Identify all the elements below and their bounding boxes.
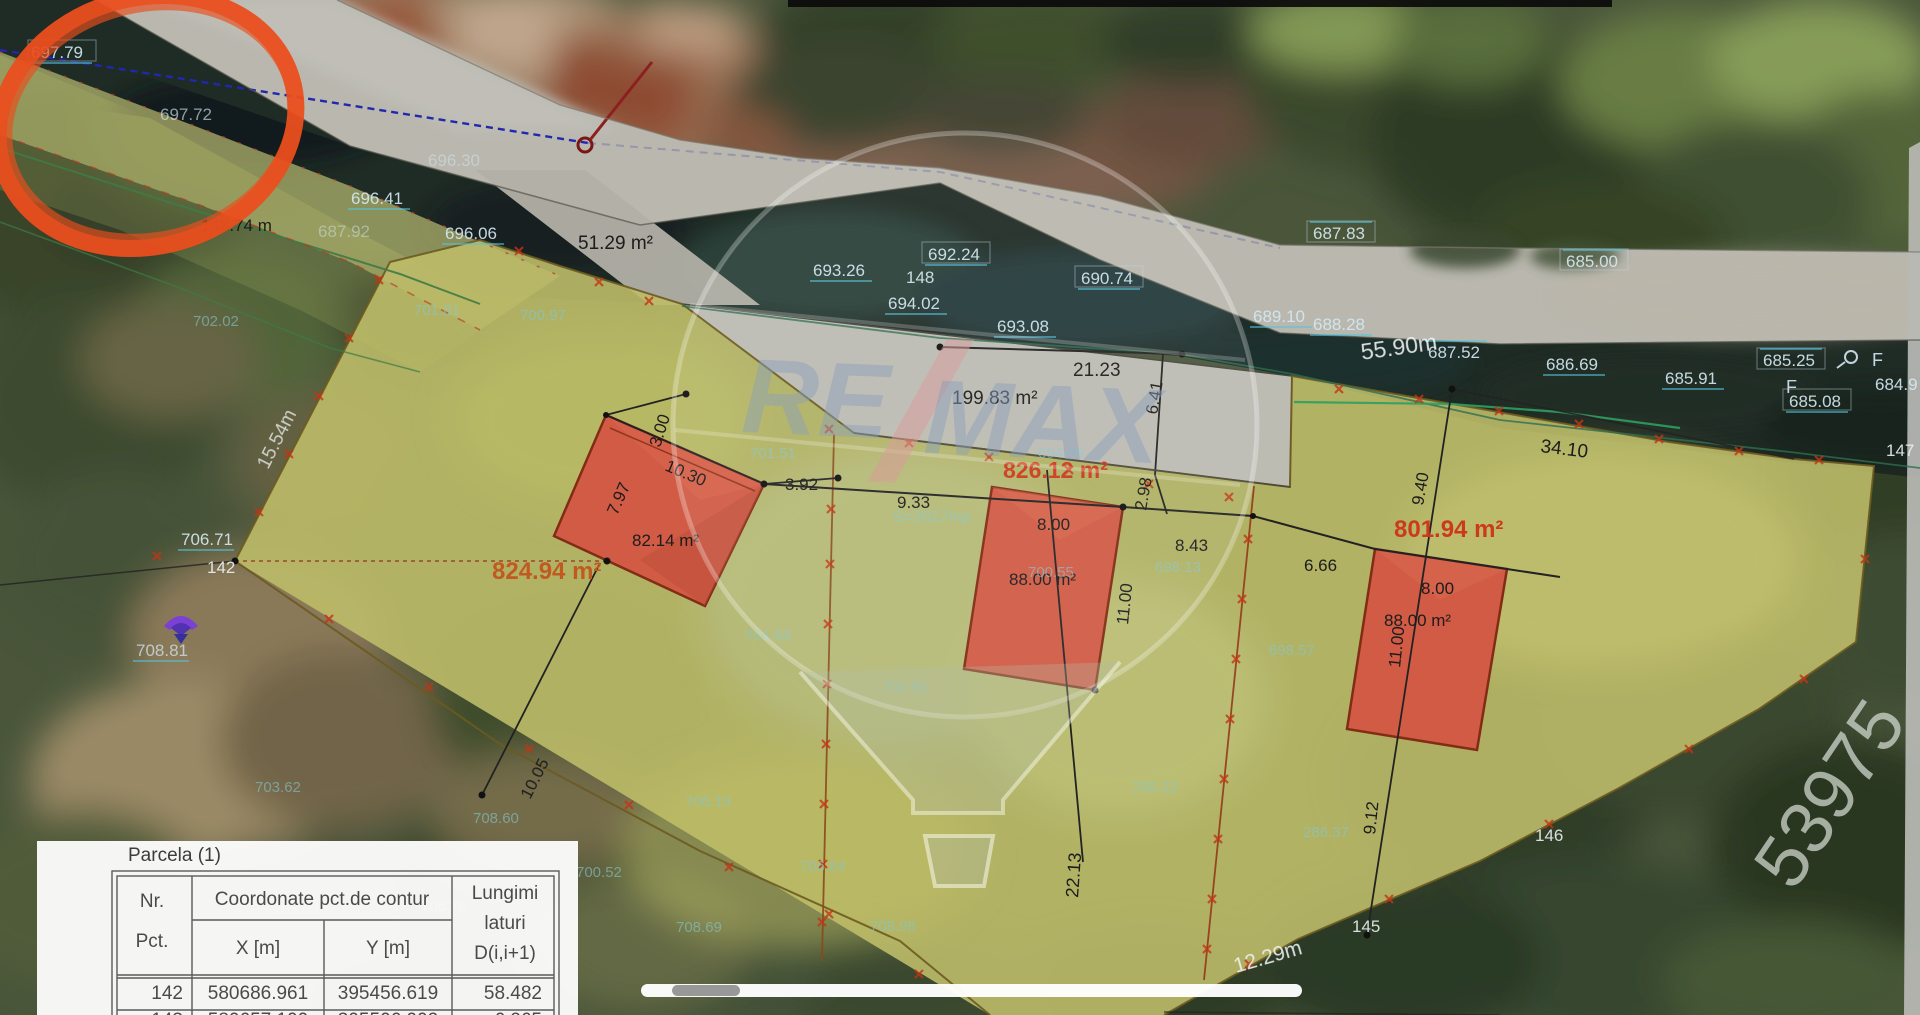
- svg-text:580686.961: 580686.961: [208, 983, 308, 1004]
- svg-text:700.97: 700.97: [520, 307, 566, 324]
- svg-text:708.60: 708.60: [473, 810, 519, 827]
- svg-text:708.69: 708.69: [676, 919, 722, 936]
- svg-text:22.13: 22.13: [1062, 852, 1085, 898]
- svg-text:703.62: 703.62: [255, 779, 301, 796]
- svg-text:9.12: 9.12: [1360, 801, 1382, 836]
- svg-text:688.28: 688.28: [1313, 315, 1365, 334]
- svg-text:D(i,i+1): D(i,i+1): [474, 943, 536, 964]
- svg-text:286.37: 286.37: [1303, 824, 1349, 841]
- svg-text:706.19: 706.19: [685, 793, 731, 810]
- svg-text:580657.100: 580657.100: [208, 1010, 308, 1015]
- svg-text:147: 147: [1886, 441, 1914, 460]
- svg-text:146: 146: [1535, 826, 1563, 845]
- svg-text:Pct.: Pct.: [136, 931, 169, 952]
- svg-text:706.71: 706.71: [181, 530, 233, 549]
- svg-text:51.29 m²: 51.29 m²: [578, 233, 653, 254]
- svg-text:686.69: 686.69: [1546, 355, 1598, 374]
- svg-text:Nr.: Nr.: [140, 891, 164, 912]
- svg-text:142: 142: [207, 558, 235, 577]
- svg-text:687.92: 687.92: [318, 222, 370, 241]
- svg-text:145: 145: [1352, 917, 1380, 936]
- svg-text:F: F: [1786, 377, 1797, 397]
- svg-text:706.84: 706.84: [800, 858, 846, 875]
- svg-text:696.06: 696.06: [445, 224, 497, 243]
- svg-text:696.41: 696.41: [351, 189, 403, 208]
- svg-text:708.81: 708.81: [136, 641, 188, 660]
- svg-text:702.02: 702.02: [193, 313, 239, 330]
- svg-text:395506.902: 395506.902: [338, 1010, 438, 1015]
- svg-text:696.30: 696.30: [428, 151, 480, 170]
- svg-text:698.57: 698.57: [1269, 642, 1315, 659]
- svg-text:Y [m]: Y [m]: [366, 938, 410, 959]
- svg-text:6.66: 6.66: [1304, 556, 1337, 575]
- svg-text:395456.619: 395456.619: [338, 983, 438, 1004]
- svg-text:700.52: 700.52: [576, 864, 622, 881]
- svg-text:6.265: 6.265: [494, 1010, 542, 1015]
- svg-text:142: 142: [151, 983, 183, 1004]
- svg-text:685.25: 685.25: [1763, 351, 1815, 370]
- svg-text:Coordonate pct.de contur: Coordonate pct.de contur: [215, 889, 430, 910]
- svg-text:82.14 m²: 82.14 m²: [632, 531, 699, 550]
- svg-text:F: F: [1872, 350, 1883, 370]
- svg-text:689.10: 689.10: [1253, 307, 1305, 326]
- svg-text:Lungimi: Lungimi: [472, 883, 539, 904]
- svg-text:Parcela (1): Parcela (1): [128, 845, 221, 866]
- svg-text:MAX: MAX: [922, 358, 1168, 486]
- svg-text:685.00: 685.00: [1566, 252, 1618, 271]
- svg-text:X [m]: X [m]: [236, 938, 280, 959]
- svg-text:58.482: 58.482: [484, 983, 542, 1004]
- svg-text:708.98: 708.98: [870, 918, 916, 935]
- svg-text:685.91: 685.91: [1665, 369, 1717, 388]
- svg-text:687.83: 687.83: [1313, 224, 1365, 243]
- svg-text:701.81: 701.81: [414, 302, 460, 319]
- svg-text:700.22: 700.22: [1132, 779, 1178, 796]
- svg-text:RE: RE: [740, 337, 896, 461]
- svg-text:801.94 m²: 801.94 m²: [1394, 516, 1503, 543]
- svg-text:laturi: laturi: [484, 913, 525, 934]
- svg-text:8.00: 8.00: [1421, 579, 1454, 598]
- svg-text:143: 143: [151, 1010, 183, 1015]
- svg-text:684.9: 684.9: [1875, 375, 1918, 394]
- svg-text:697.72: 697.72: [160, 105, 212, 124]
- svg-text:824.94 m²: 824.94 m²: [492, 558, 601, 585]
